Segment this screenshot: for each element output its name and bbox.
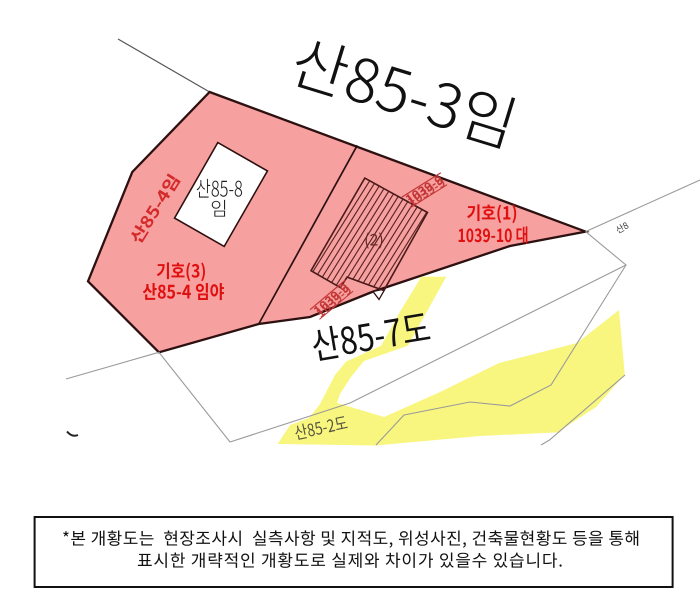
svg-text:임: 임 — [210, 195, 227, 222]
svg-text:표시한 개략적인 개황도로 실제와 차이가 있을수 있습니다: 표시한 개략적인 개황도로 실제와 차이가 있을수 있습니다. — [137, 547, 563, 572]
svg-text:1039-10 대: 1039-10 대 — [458, 222, 529, 248]
svg-text:(2): (2) — [364, 227, 384, 251]
svg-text:산85-4 임야: 산85-4 임야 — [142, 279, 224, 305]
